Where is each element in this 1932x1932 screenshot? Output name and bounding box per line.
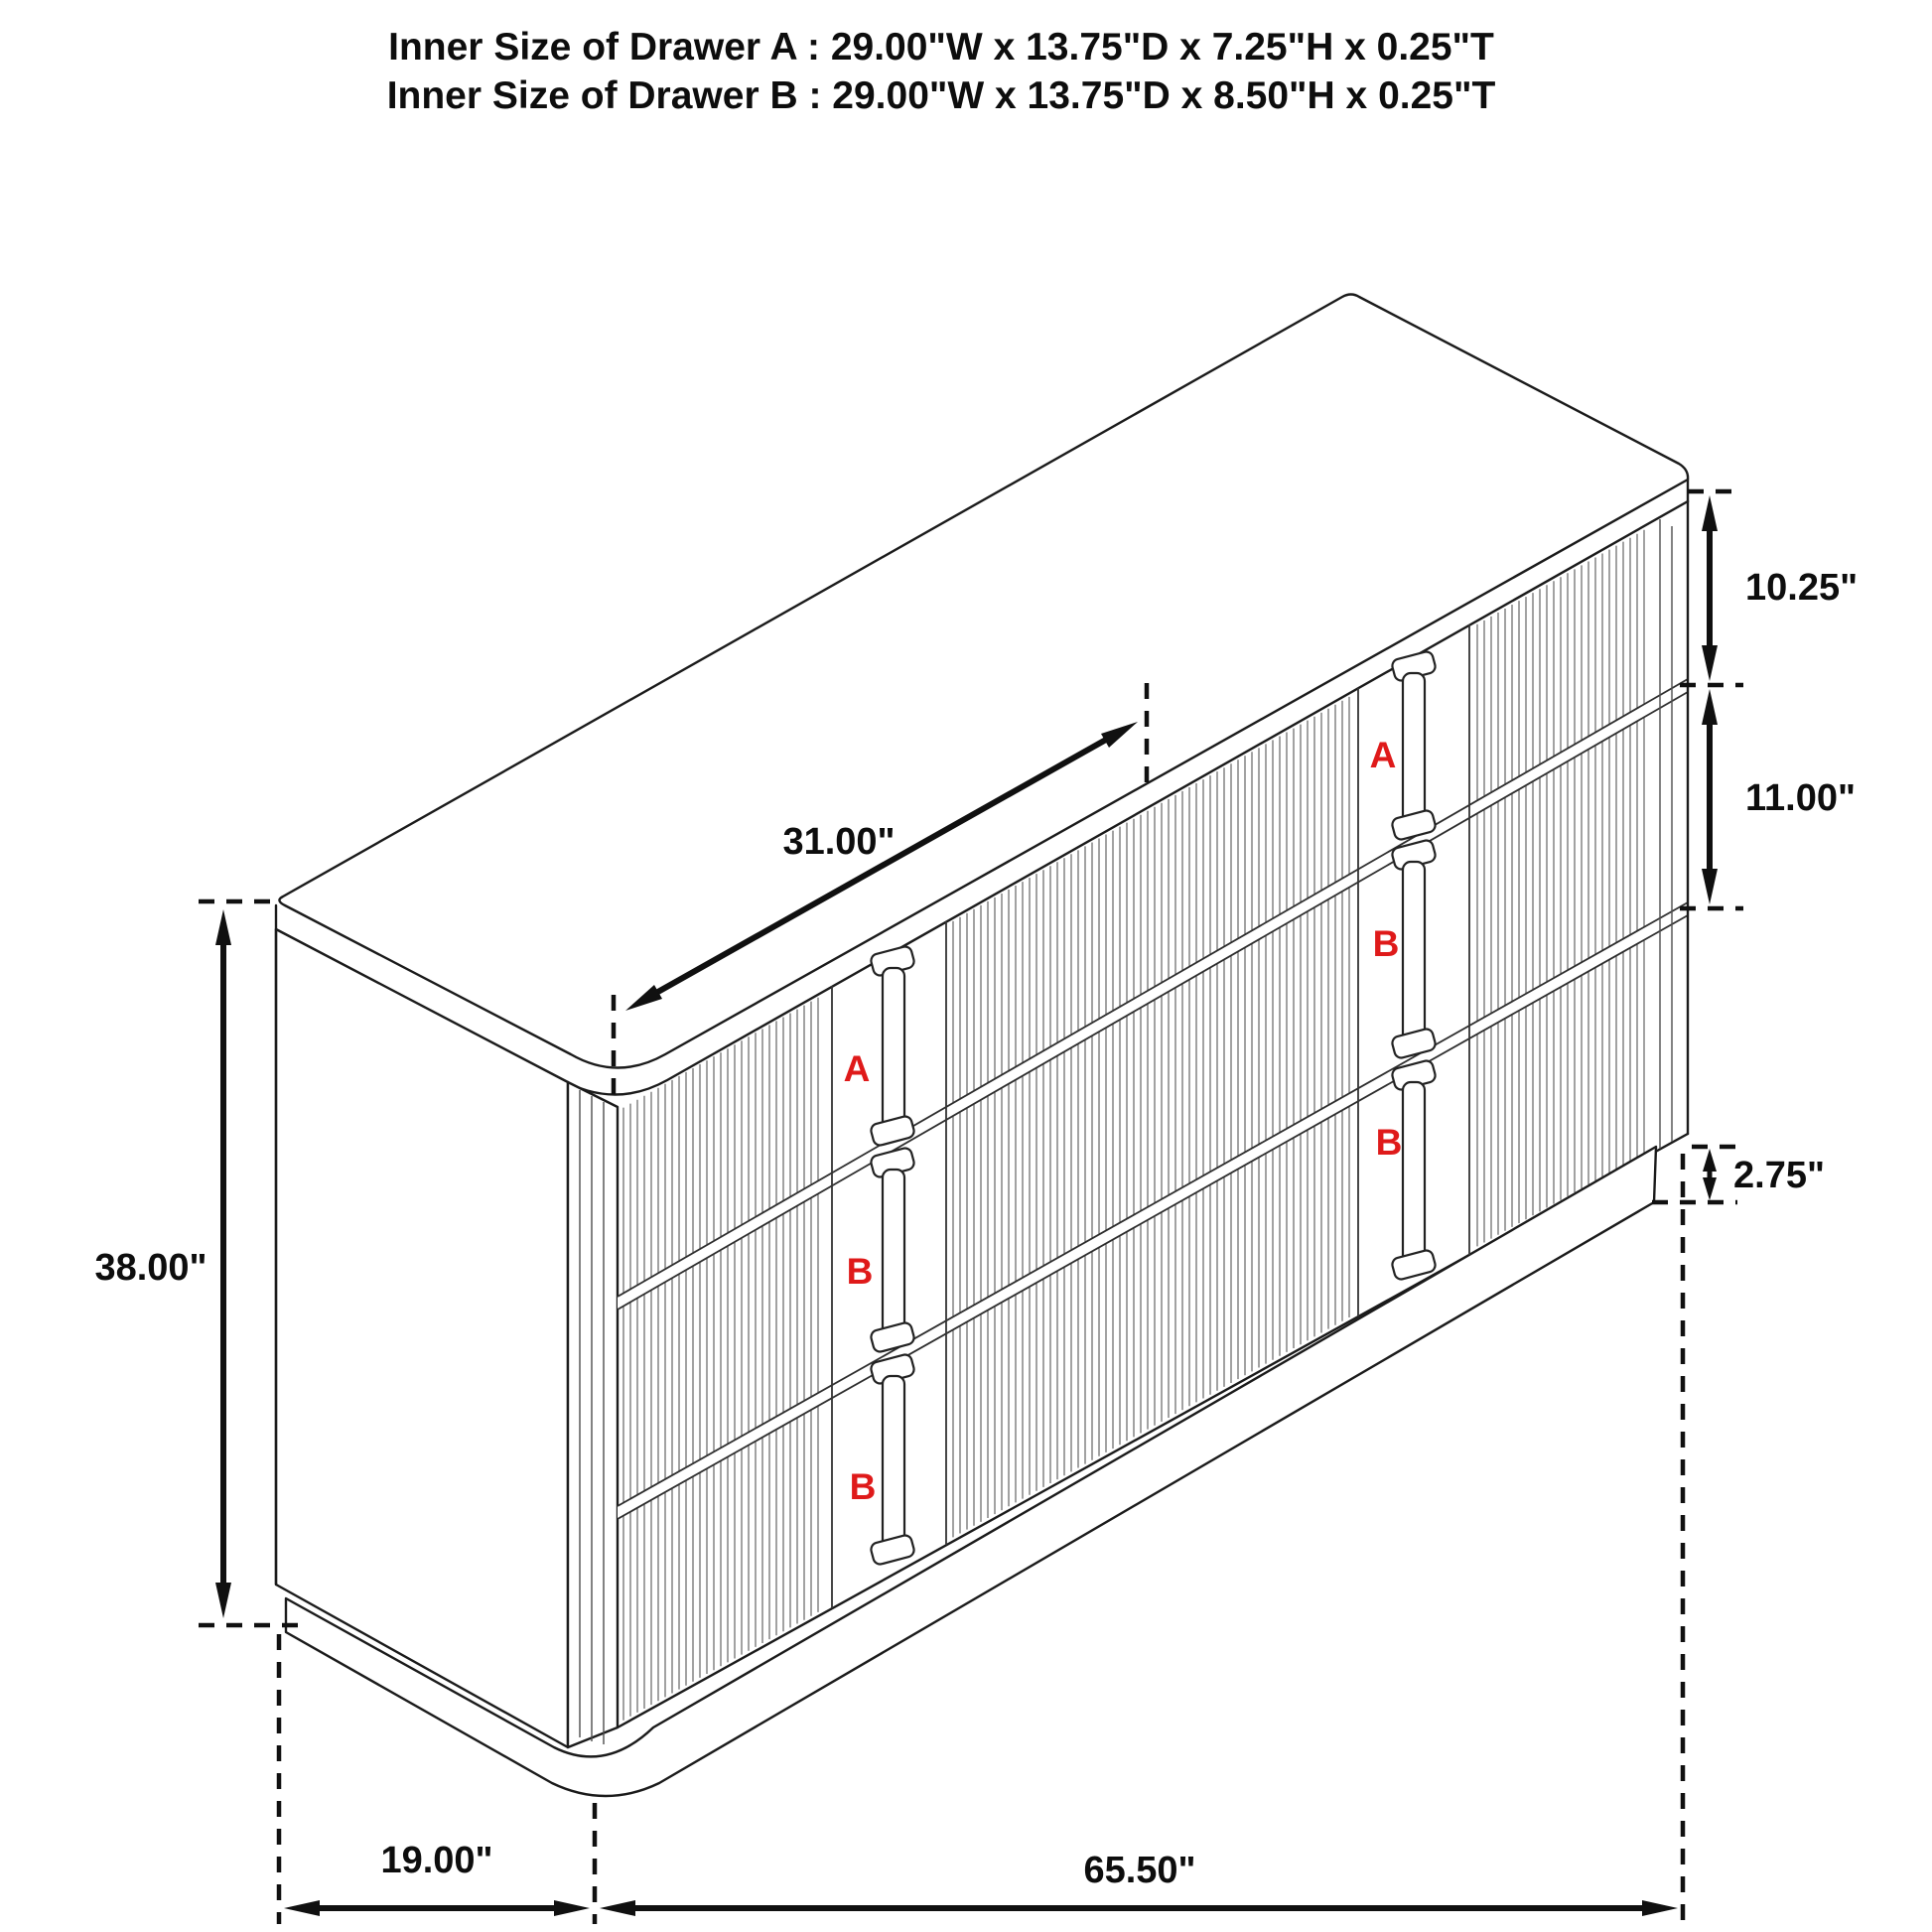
arrowhead — [215, 1583, 231, 1618]
drawer-label-left-a: A — [844, 1048, 871, 1089]
dim-label-width: 65.50" — [1083, 1850, 1195, 1891]
arrowhead — [1702, 869, 1718, 904]
drawer-handle — [1403, 862, 1425, 1046]
arrowhead — [1702, 495, 1718, 531]
dim-label-middle-drawer: 11.00" — [1745, 777, 1856, 819]
front-left-corner — [568, 1082, 618, 1747]
arrowhead — [1702, 645, 1718, 681]
dresser-top-face — [279, 295, 1688, 1068]
dim-label-base: 2.75" — [1733, 1155, 1825, 1196]
right-drawer-handles — [1391, 650, 1437, 1281]
title-drawer-b-size: Inner Size of Drawer B : 29.00"W x 13.75… — [387, 74, 1496, 117]
arrowhead — [554, 1900, 590, 1916]
dresser-dimension-diagram: Inner Size of Drawer A : 29.00"W x 13.75… — [0, 0, 1932, 1932]
dresser-drawing: A B B A B B — [276, 295, 1688, 1797]
diagram-canvas: Inner Size of Drawer A : 29.00"W x 13.75… — [0, 0, 1932, 1932]
arrowhead — [1642, 1900, 1678, 1916]
dim-label-depth: 19.00" — [380, 1840, 492, 1881]
drawer-handle — [883, 1170, 904, 1340]
dim-label-height: 38.00" — [94, 1247, 207, 1289]
drawer-label-left-b1: B — [847, 1251, 874, 1292]
drawer-handle — [1403, 1082, 1425, 1268]
dim-label-drawer-width: 31.00" — [782, 821, 895, 863]
drawer-label-right-b2: B — [1376, 1122, 1403, 1163]
handle-cap — [870, 1534, 915, 1566]
drawer-handle — [883, 968, 904, 1136]
drawer-handle — [1403, 673, 1425, 828]
arrowhead — [1702, 689, 1718, 725]
dim-label-top-drawer: 10.25" — [1745, 567, 1858, 609]
drawer-label-right-a: A — [1370, 735, 1397, 775]
drawer-label-right-b1: B — [1373, 923, 1400, 964]
drawer-handle — [883, 1376, 904, 1553]
arrowhead — [1703, 1177, 1717, 1200]
arrowhead — [600, 1900, 635, 1916]
left-drawer-handles — [870, 945, 915, 1566]
title-drawer-a-size: Inner Size of Drawer A : 29.00"W x 13.75… — [388, 26, 1494, 69]
drawer-label-left-b2: B — [850, 1466, 877, 1507]
arrowhead — [215, 909, 231, 945]
arrowhead — [284, 1900, 320, 1916]
arrowhead — [1703, 1149, 1717, 1172]
